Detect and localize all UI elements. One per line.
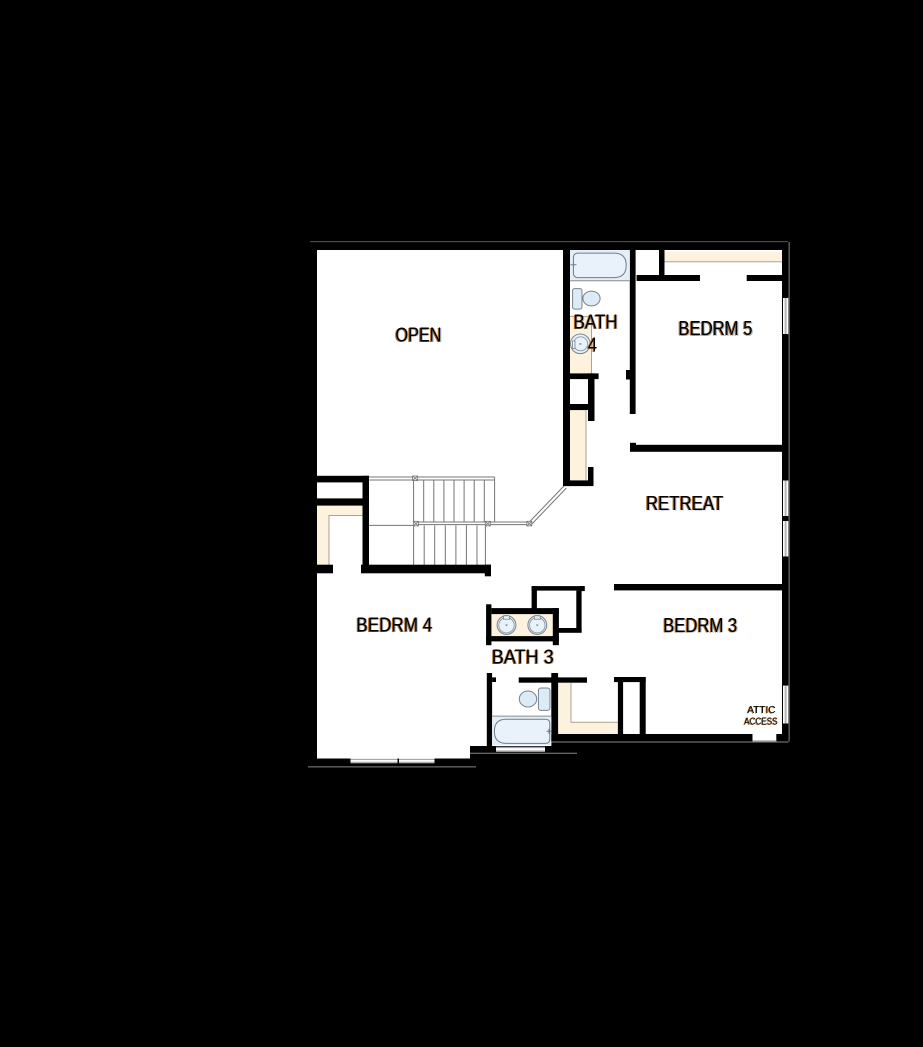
svg-text:BEDRM 3: BEDRM 3 xyxy=(663,613,737,636)
svg-text:RETREAT: RETREAT xyxy=(646,491,723,514)
svg-text:BATH: BATH xyxy=(573,310,617,333)
svg-text:4: 4 xyxy=(588,333,597,356)
svg-text:BATH 3: BATH 3 xyxy=(492,647,554,669)
svg-text:OPEN: OPEN xyxy=(395,324,441,346)
svg-text:BEDRM 5: BEDRM 5 xyxy=(678,317,752,340)
svg-text:ACCESS: ACCESS xyxy=(744,714,777,726)
svg-text:BEDRM 4: BEDRM 4 xyxy=(356,613,432,636)
